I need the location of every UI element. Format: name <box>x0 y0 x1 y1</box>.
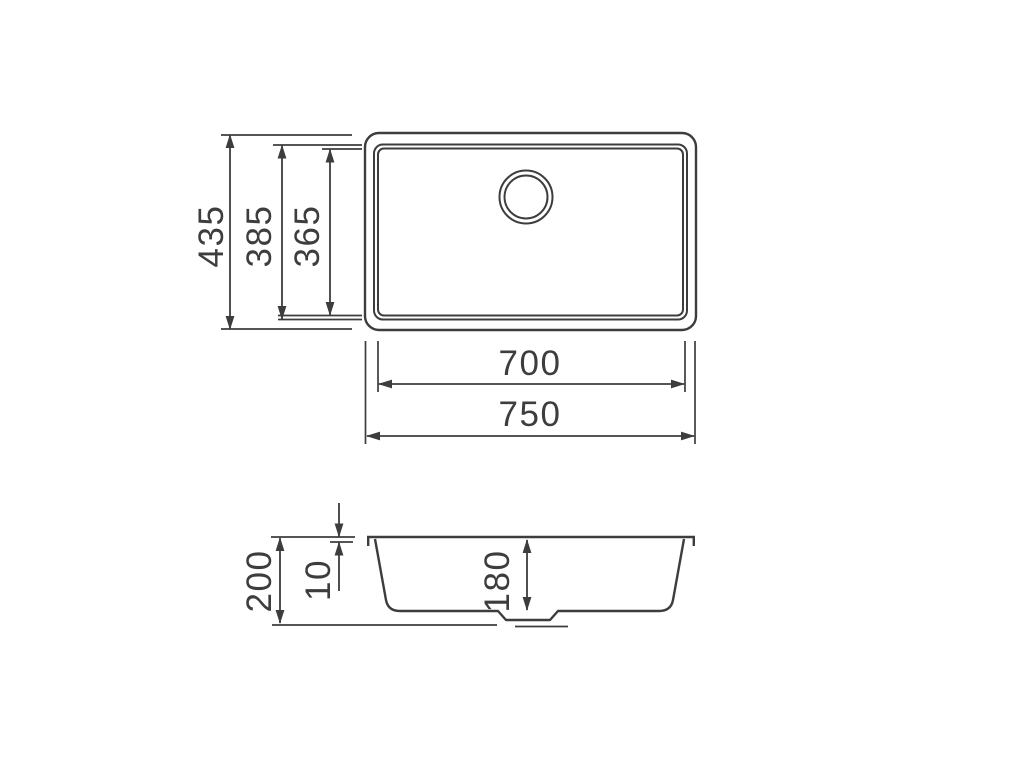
dim-label-overall-depth: 200 <box>240 550 279 613</box>
drawing-svg: 435 385 365 700 750 200 <box>0 0 1024 768</box>
sink-outer-edge <box>365 133 696 330</box>
top-view <box>365 133 696 330</box>
dim-label-outer-bowl-height: 385 <box>240 205 279 268</box>
sink-rim-inner-line <box>378 149 683 316</box>
dim-rim-thickness: 10 <box>299 503 353 601</box>
drain-inner-circle <box>505 176 548 219</box>
dim-label-inner-bowl-width: 700 <box>499 344 562 383</box>
dim-inner-bowl-width: 700 <box>378 341 685 392</box>
side-view <box>367 537 695 620</box>
dim-bowl-depth: 180 <box>478 540 527 612</box>
dim-label-inner-bowl-height: 365 <box>288 205 327 268</box>
dim-overall-depth: 200 <box>240 537 568 627</box>
dim-label-rim-thickness: 10 <box>299 559 338 601</box>
dim-label-overall-width: 750 <box>499 395 562 434</box>
drain-outer-circle <box>500 171 553 224</box>
dim-inner-bowl-height: 365 <box>278 149 362 316</box>
sink-technical-drawing: 435 385 365 700 750 200 <box>0 0 1024 768</box>
dim-label-overall-height: 435 <box>192 205 231 268</box>
dim-label-bowl-depth: 180 <box>478 550 517 613</box>
bowl-profile <box>375 539 684 620</box>
